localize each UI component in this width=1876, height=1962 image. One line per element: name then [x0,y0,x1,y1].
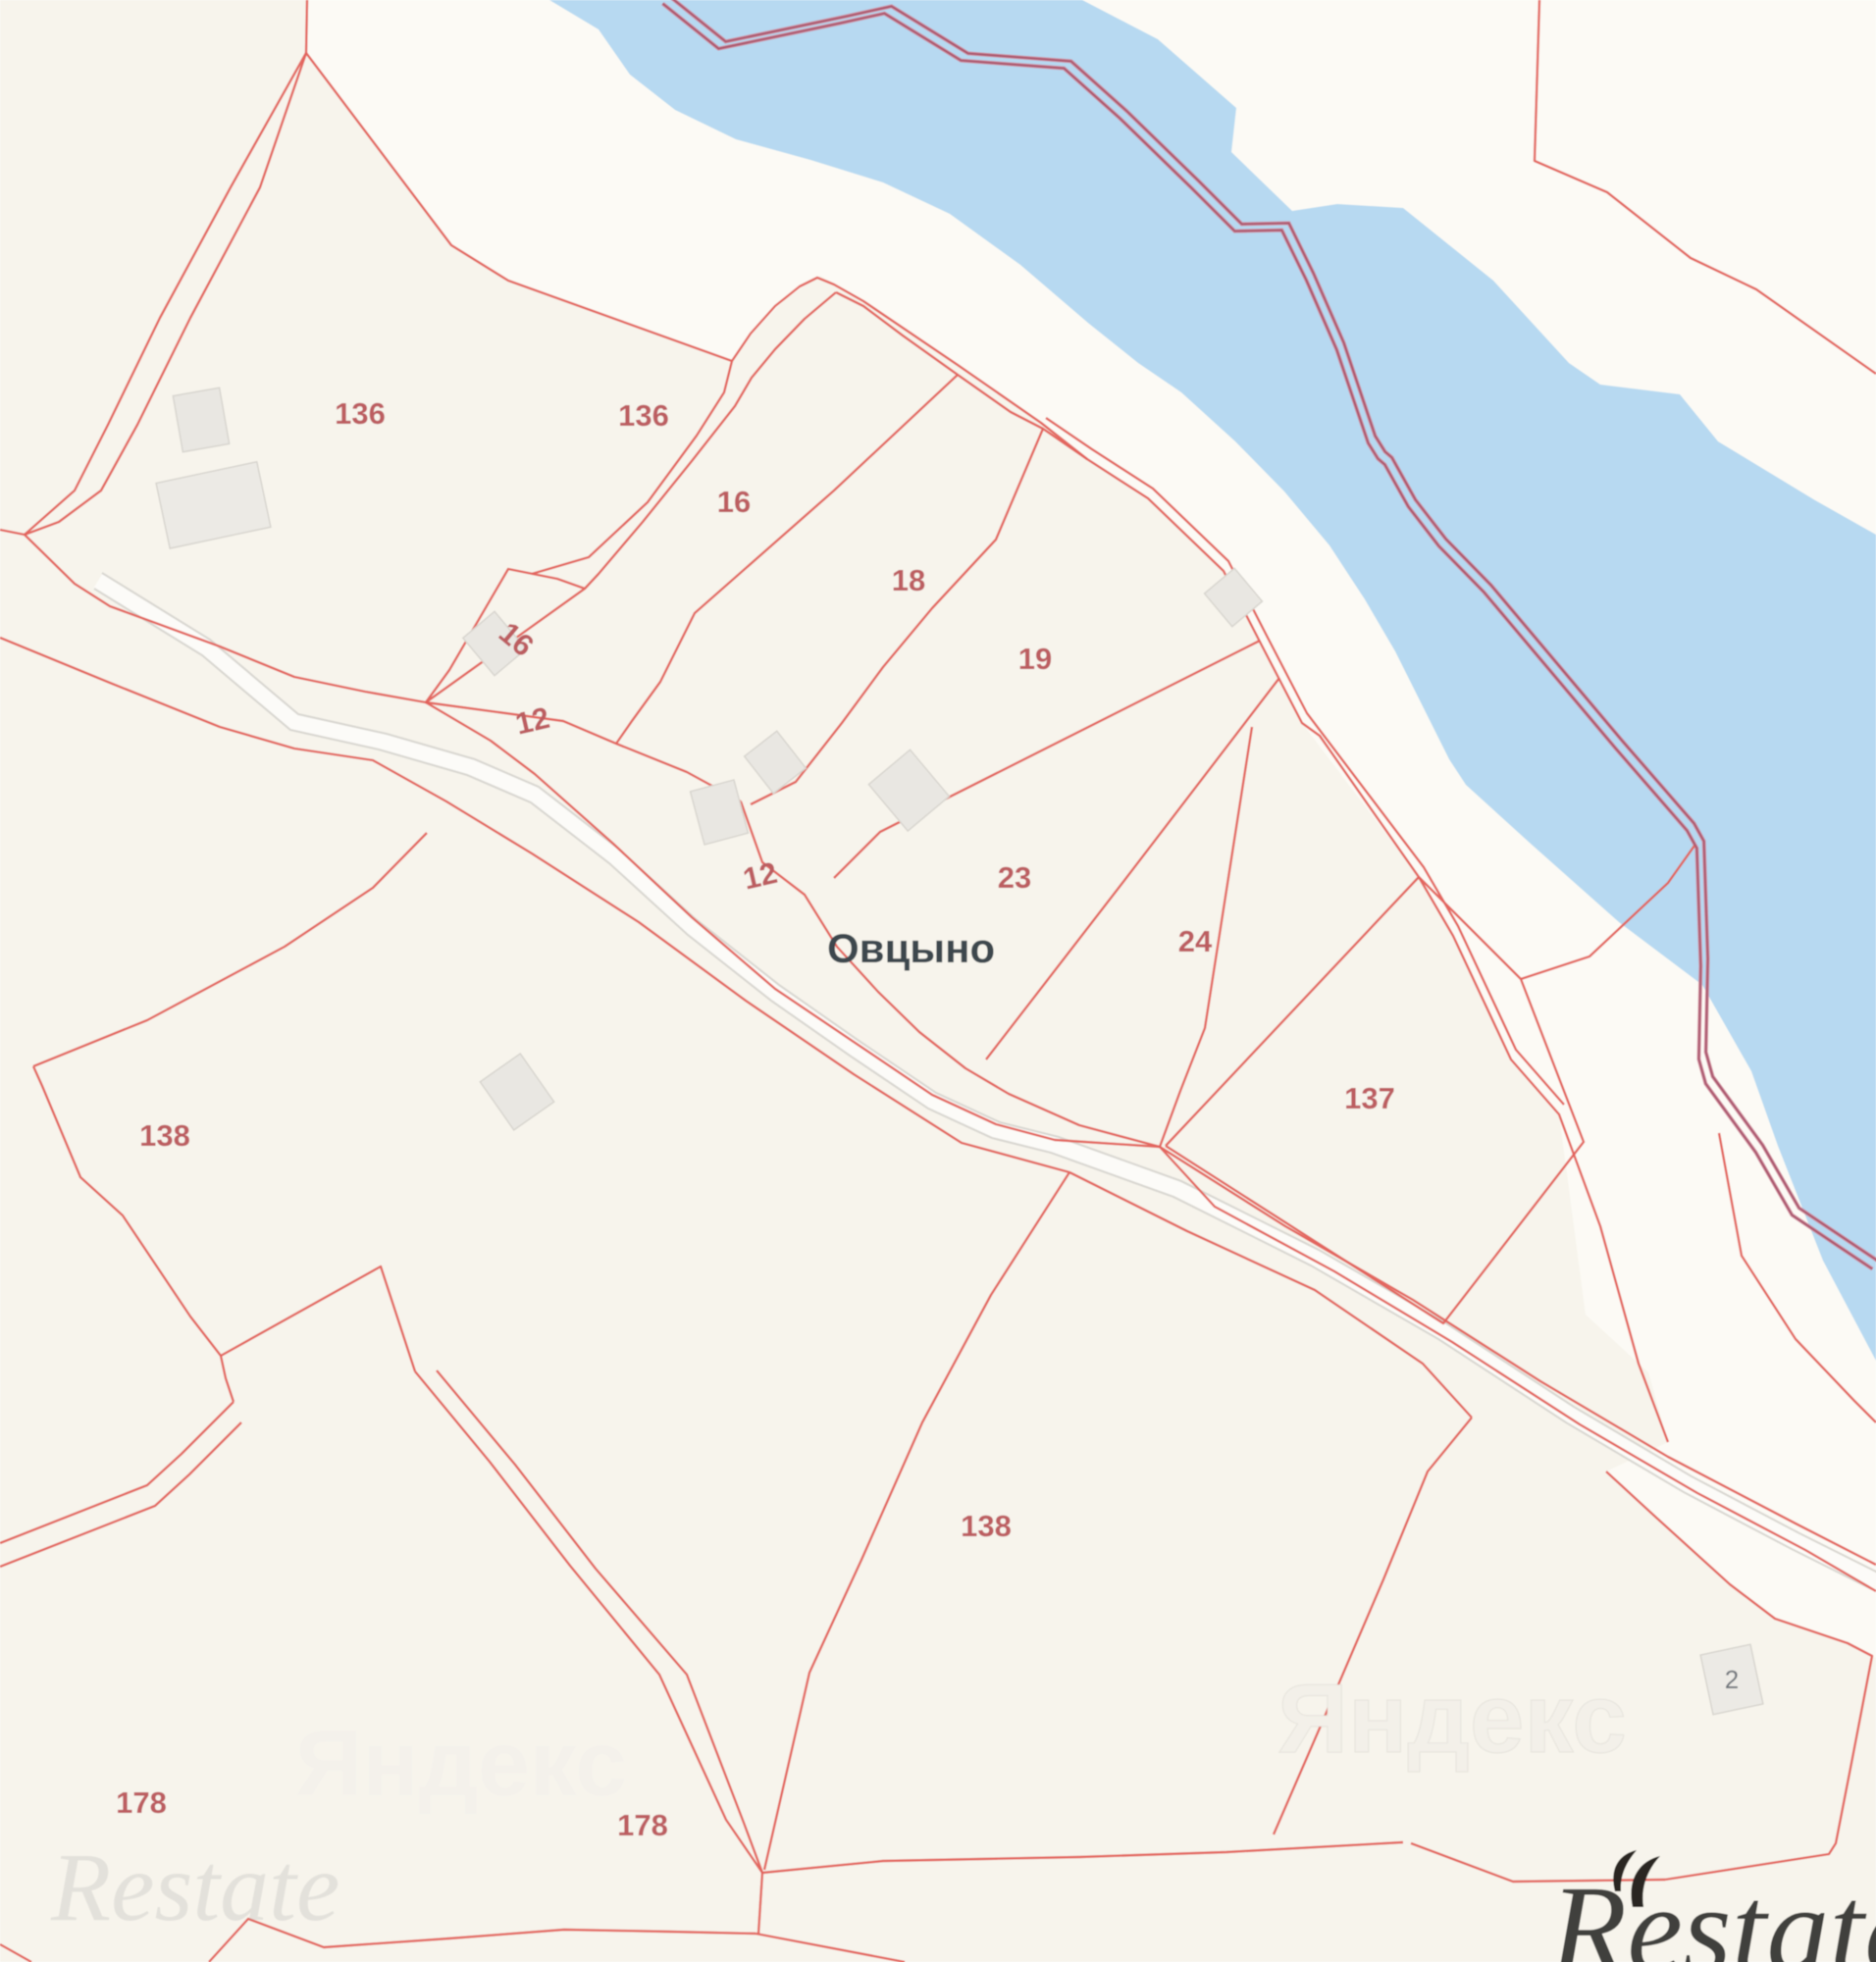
svg-text:137: 137 [1344,1081,1395,1115]
svg-text:Restate: Restate [50,1833,339,1941]
svg-text:24: 24 [1178,924,1213,958]
svg-text:178: 178 [116,1785,167,1820]
svg-text:138: 138 [961,1509,1012,1543]
svg-text:Яндекс: Яндекс [295,1712,627,1816]
svg-text:Яндекс: Яндекс [1277,1664,1627,1774]
svg-text:23: 23 [998,860,1031,895]
svg-text:138: 138 [139,1118,190,1153]
svg-text:2: 2 [1725,1665,1739,1694]
svg-text:18: 18 [892,563,925,597]
svg-text:Restate: Restate [1549,1860,1876,1962]
svg-text:136: 136 [618,398,669,433]
svg-text:19: 19 [1018,642,1052,676]
svg-text:136: 136 [335,396,386,431]
svg-text:Овцыно: Овцыно [827,925,995,971]
svg-text:16: 16 [717,485,751,519]
